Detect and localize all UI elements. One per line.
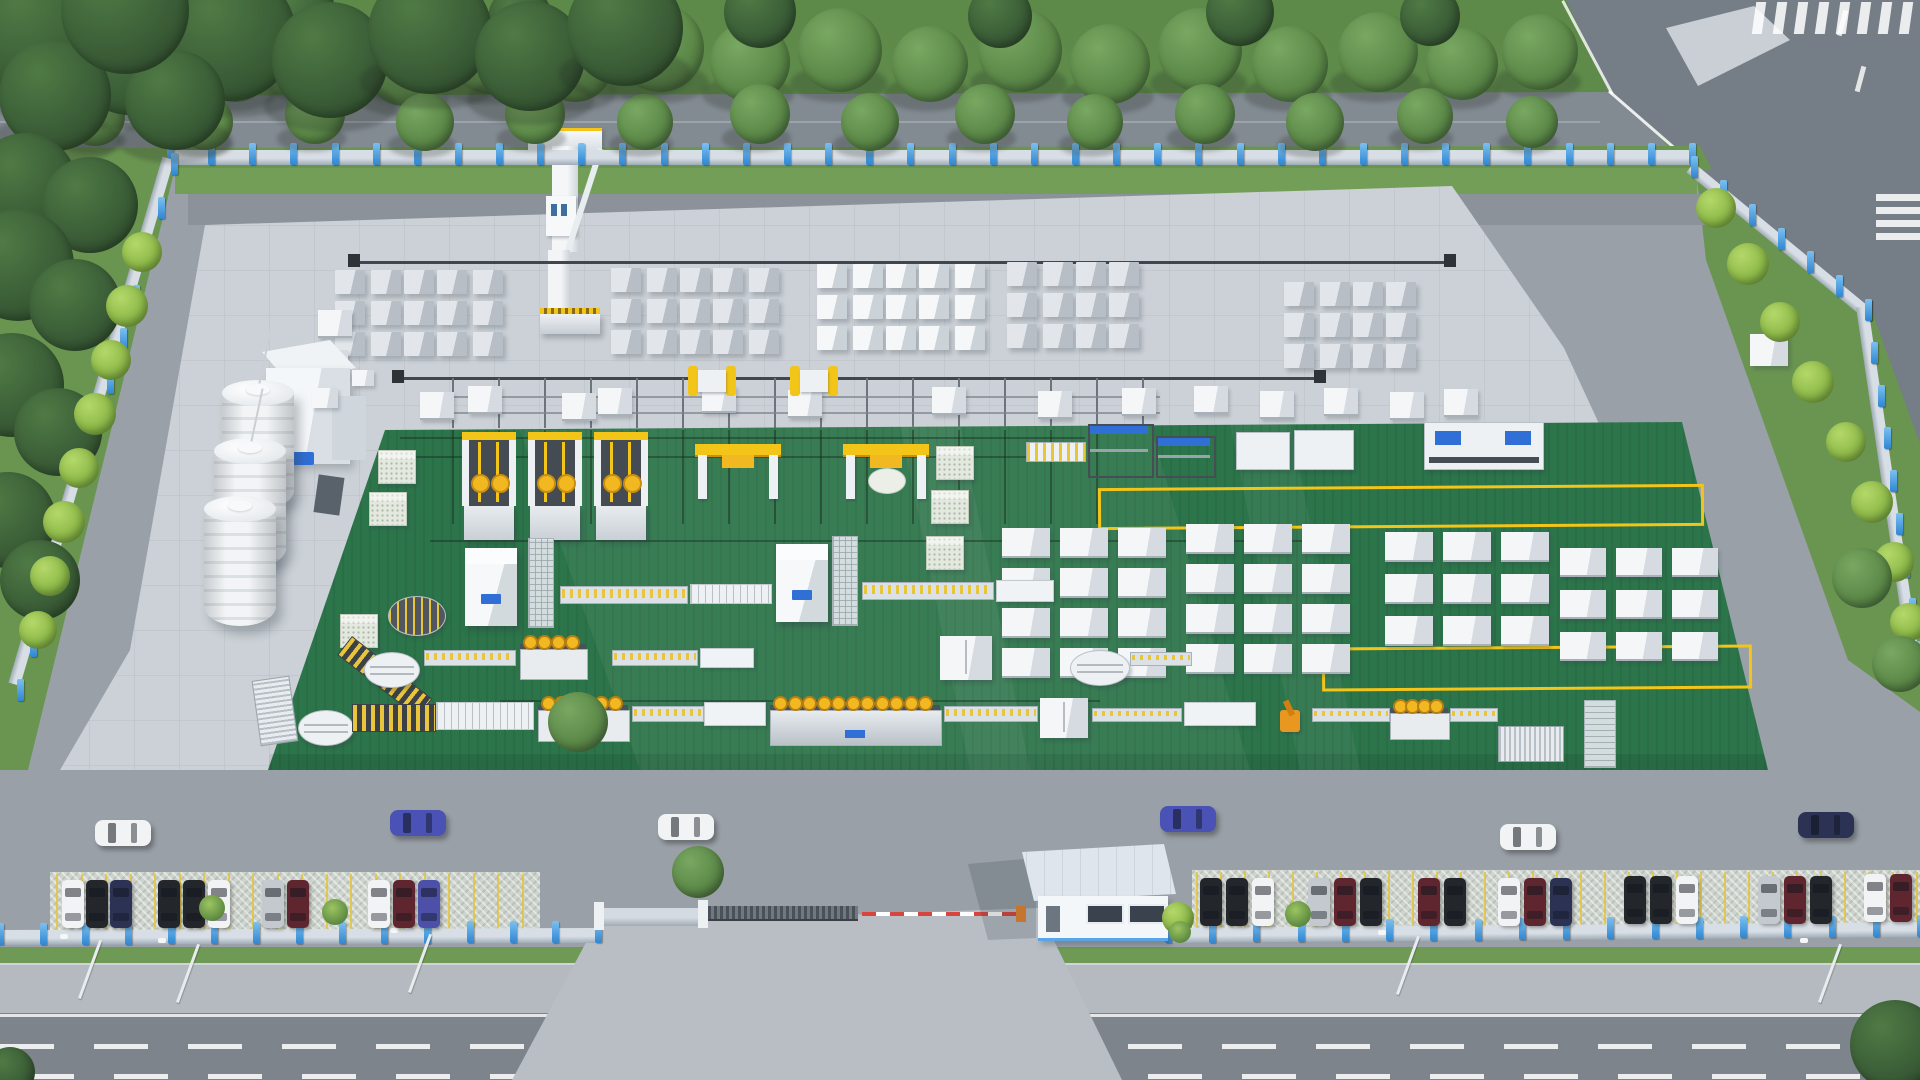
cart-body: [800, 370, 828, 392]
mold-box: [562, 393, 596, 421]
car-glass: [1867, 907, 1883, 915]
parked-car: [1624, 876, 1646, 924]
inner-grass-strip: [175, 168, 1697, 194]
machine-wheel: [471, 474, 490, 493]
car-glass: [1527, 911, 1543, 919]
cabinet-door: [965, 640, 967, 674]
turn-line: [1077, 671, 1123, 673]
moving-car: [390, 810, 446, 836]
tree: [1727, 243, 1769, 285]
block-stack: [955, 326, 985, 350]
roller-conveyor: [632, 706, 704, 722]
floor-rail: [590, 430, 592, 524]
aerated-cake: [936, 446, 974, 480]
blue-unit: [1435, 431, 1461, 445]
fence-post: [249, 143, 256, 165]
car-glass: [161, 888, 177, 897]
car-glass: [89, 913, 105, 921]
car-glass: [1787, 884, 1803, 893]
turn-line: [370, 673, 413, 675]
gantry-trolley: [722, 455, 754, 468]
block-stack: [1007, 262, 1037, 286]
turntable: [298, 710, 354, 746]
fence-post: [1691, 156, 1698, 178]
mold-box: [1186, 524, 1234, 554]
crane-rail: [396, 377, 1322, 380]
mold-box: [1260, 391, 1294, 419]
work-table: [700, 648, 754, 668]
fence-post: [373, 143, 380, 165]
machine-rail: [562, 442, 565, 502]
parked-car: [1676, 876, 1698, 924]
fence-post: [1237, 143, 1244, 165]
tree: [1252, 26, 1328, 102]
crosswalk-bar: [1876, 194, 1920, 201]
machine-logo: [481, 594, 501, 604]
block-stack: [1386, 344, 1416, 368]
fence-post: [825, 143, 832, 165]
spool: [1429, 699, 1444, 714]
crosswalk-bar: [1876, 207, 1920, 214]
parked-car: [287, 880, 309, 928]
car-glass: [421, 888, 437, 897]
car-glass: [1173, 809, 1181, 829]
lane-dash: [282, 1044, 336, 1049]
rollers: [426, 653, 514, 660]
moving-car: [1500, 824, 1556, 850]
car-glass: [671, 817, 679, 837]
machine-top: [776, 544, 828, 560]
mold-box: [1443, 616, 1491, 646]
mold-box: [1672, 548, 1718, 577]
block-stack: [817, 326, 847, 350]
cutting-machine: [462, 432, 516, 546]
roller-conveyor: [1312, 708, 1390, 722]
car-glass: [1527, 886, 1543, 895]
block-stack: [647, 299, 677, 323]
crane-cab-window: [561, 204, 567, 216]
roller-conveyor: [1450, 708, 1498, 722]
car-glass: [1311, 911, 1327, 919]
mold-box: [1385, 574, 1433, 604]
fence-post: [1607, 917, 1614, 939]
fence-post: [1890, 470, 1897, 492]
car-glass: [1363, 886, 1379, 895]
moving-car: [658, 814, 714, 840]
block-stack: [886, 295, 916, 319]
mold-box: [1118, 608, 1166, 638]
turn-line: [1077, 664, 1123, 666]
tree: [1067, 94, 1123, 150]
tree: [122, 232, 162, 272]
parked-car: [1784, 876, 1806, 924]
mold-box: [1444, 389, 1478, 417]
fence-post: [1778, 228, 1785, 250]
turn-line: [304, 724, 347, 726]
mold-box: [318, 310, 352, 338]
blue-machine: [1088, 424, 1154, 478]
machine-rail: [544, 442, 547, 502]
lane-dash: [1316, 1044, 1370, 1049]
tree: [617, 94, 673, 150]
parked-car: [1444, 878, 1466, 926]
block-stack: [1353, 282, 1383, 306]
tree: [1826, 422, 1866, 462]
parked-car: [62, 880, 84, 928]
rail-buffer: [392, 370, 404, 383]
tree: [91, 340, 131, 380]
block-stack: [437, 270, 467, 294]
parked-car: [368, 880, 390, 928]
car-glass: [1255, 886, 1271, 895]
yellow-gantry: [843, 444, 929, 502]
rollers: [614, 653, 696, 660]
blue-machine: [1156, 436, 1216, 478]
equipment-hut: [352, 370, 374, 386]
aerated-cake: [378, 450, 416, 484]
slat-conveyor: [690, 584, 772, 604]
fence-post: [907, 143, 914, 165]
lattice-tower: [832, 536, 858, 626]
fence-post: [40, 923, 47, 945]
block-stack: [611, 299, 641, 323]
street-lamp: [60, 934, 90, 1000]
cart-arm: [688, 366, 698, 396]
bush: [199, 895, 225, 921]
blue-bar: [1090, 426, 1148, 434]
machine-column: [575, 440, 582, 506]
stall-line: [1412, 872, 1414, 932]
cake-top: [370, 493, 406, 501]
gantry-leg: [698, 455, 707, 499]
moving-car: [95, 820, 151, 846]
cutting-machine: [594, 432, 648, 546]
block-stack: [713, 299, 743, 323]
moving-car: [1160, 806, 1216, 832]
car-glass: [1867, 882, 1883, 891]
fence-post: [1896, 513, 1903, 535]
parked-car: [418, 880, 440, 928]
fence-post: [158, 197, 165, 219]
car-glass: [1627, 909, 1643, 917]
mold-box: [1118, 568, 1166, 598]
fence-post: [496, 143, 503, 165]
control-cabinet: [1040, 698, 1088, 738]
spool: [788, 696, 803, 711]
cake-top: [932, 491, 968, 499]
transfer-cart: [790, 360, 838, 402]
block-stack: [437, 301, 467, 325]
lane-dash: [188, 1044, 242, 1049]
lamp-head: [390, 928, 398, 933]
fence-post: [1648, 143, 1655, 165]
fence-post: [510, 921, 517, 943]
car-glass: [1501, 911, 1517, 919]
mold-box: [1672, 632, 1718, 661]
machine-wheel: [537, 474, 556, 493]
car-glass: [396, 888, 412, 897]
car-glass: [265, 888, 281, 897]
gantry-leg: [769, 455, 778, 499]
lane-dash: [1504, 1044, 1558, 1049]
mold-box: [1616, 590, 1662, 619]
mold-box: [1244, 644, 1292, 674]
car-glass: [396, 913, 412, 921]
lane-dash: [1410, 1044, 1464, 1049]
block-stack: [853, 326, 883, 350]
cake-top: [341, 615, 377, 623]
siding-rail: [682, 378, 684, 428]
mold-box: [1501, 532, 1549, 562]
lane-dash: [470, 1044, 524, 1049]
car-glass: [1761, 884, 1777, 893]
stall-line: [1580, 872, 1582, 932]
block-stack: [1386, 282, 1416, 306]
block-stack: [473, 301, 503, 325]
block-stack: [404, 332, 434, 356]
car-glass: [65, 888, 81, 897]
cart-body: [698, 370, 726, 392]
car-glass: [1501, 886, 1517, 895]
street-lamp: [1800, 938, 1830, 1004]
fence-post: [1566, 143, 1573, 165]
car-glass: [426, 813, 432, 833]
car-glass: [1447, 886, 1463, 895]
mold-box: [1443, 574, 1491, 604]
car-glass: [161, 913, 177, 921]
machine-rail: [496, 442, 499, 502]
block-stack: [404, 301, 434, 325]
machine-rail: [478, 442, 481, 502]
guard-house-window: [1128, 904, 1166, 924]
car-glass: [371, 888, 387, 897]
work-table: [996, 580, 1054, 602]
car-glass: [89, 888, 105, 897]
roller-conveyor: [612, 650, 698, 666]
parked-car: [1252, 878, 1274, 926]
bush: [322, 899, 348, 925]
dosing-machine: [776, 544, 828, 622]
equipment-hut: [312, 388, 338, 408]
mold-box: [598, 388, 632, 416]
tree: [1760, 302, 1800, 342]
lane-dash: [94, 1044, 148, 1049]
siding-rail: [912, 378, 914, 428]
mold-box: [1501, 574, 1549, 604]
block-stack: [1109, 262, 1139, 286]
car-glass: [1679, 909, 1695, 917]
lane-dash: [376, 1044, 430, 1049]
cake-top: [937, 447, 973, 455]
fence-post: [1871, 342, 1878, 364]
car-glass: [1447, 911, 1463, 919]
mold-box: [1122, 388, 1156, 416]
block-stack: [853, 295, 883, 319]
guard-house-door: [1046, 906, 1060, 932]
cutting-machine: [528, 432, 582, 546]
mold-box: [1002, 648, 1050, 678]
lattice-tower: [1584, 700, 1616, 768]
spool-base: [520, 649, 588, 680]
rollers: [634, 709, 702, 716]
lane-dash: [114, 1074, 168, 1079]
slat-conveyor: [436, 702, 534, 730]
company-logo: [292, 452, 314, 465]
car-glass: [1337, 911, 1353, 919]
machine-wheel: [491, 474, 510, 493]
lane-dash: [1242, 1074, 1296, 1079]
car-glass: [1203, 911, 1219, 919]
parked-car: [158, 880, 180, 928]
floor-rail: [682, 430, 684, 524]
block-stack: [1353, 313, 1383, 337]
floor-rail: [452, 430, 454, 524]
tree: [798, 8, 882, 92]
parked-car: [1864, 874, 1886, 922]
car-glass: [1653, 884, 1669, 893]
mold-box: [1038, 391, 1072, 419]
block-stack: [1043, 262, 1073, 286]
mold-box: [1560, 548, 1606, 577]
spool: [608, 696, 623, 711]
crane-cab-window: [551, 204, 557, 216]
machine-column: [462, 440, 469, 506]
block-stack: [1043, 293, 1073, 317]
machine-top: [465, 548, 517, 564]
frame-beam: [1090, 449, 1148, 452]
accordion-rack: [1498, 726, 1564, 762]
fence-post: [1154, 143, 1161, 165]
machine-pedestal: [596, 506, 646, 540]
tree: [841, 93, 899, 151]
car-glass: [1513, 827, 1521, 847]
tree: [30, 556, 70, 596]
blue-unit: [1505, 431, 1531, 445]
loading-ramp: [313, 474, 344, 515]
block-stack: [1109, 324, 1139, 348]
bush: [1285, 901, 1311, 927]
car-glass: [371, 913, 387, 921]
mold-box: [1501, 616, 1549, 646]
cabinet-door: [1063, 702, 1065, 732]
lamp-head: [158, 938, 166, 943]
tree: [1832, 548, 1892, 608]
mold-box: [1302, 564, 1350, 594]
mold-box: [1324, 388, 1358, 416]
block-stack: [647, 268, 677, 292]
gate-wall: [598, 908, 702, 926]
car-glass: [1761, 909, 1777, 917]
parked-car: [1226, 878, 1248, 926]
machine-rail: [628, 442, 631, 502]
fence-post: [339, 922, 346, 944]
fence-post: [1836, 275, 1843, 297]
mold-box: [932, 387, 966, 415]
block-stack: [647, 330, 677, 354]
wire-spool-machine: [1390, 696, 1448, 738]
street-lamp: [390, 928, 420, 994]
gate-pillar: [698, 900, 708, 928]
yellow-gantry: [695, 444, 781, 502]
machine-column: [509, 440, 516, 506]
machine-rail: [610, 442, 613, 502]
block-stack: [853, 264, 883, 288]
car-glass: [1813, 909, 1829, 917]
roller-conveyor: [424, 650, 516, 666]
lane-dash: [302, 1074, 356, 1079]
mold-box: [1186, 644, 1234, 674]
stall-line: [1196, 872, 1198, 932]
frame-beam: [1158, 455, 1210, 458]
bush: [1169, 921, 1191, 943]
cart-arm: [726, 366, 736, 396]
mold-box: [1616, 632, 1662, 661]
fence-post: [1360, 143, 1367, 165]
tree: [74, 393, 116, 435]
parked-car: [1524, 878, 1546, 926]
block-stack: [1320, 282, 1350, 306]
car-glass: [1893, 882, 1909, 891]
dosing-machine: [465, 548, 517, 626]
car-glass: [108, 823, 116, 843]
fence-post: [455, 143, 462, 165]
block-stack: [1353, 344, 1383, 368]
fence-post: [1483, 143, 1490, 165]
tree: [892, 26, 968, 102]
fence-post: [17, 679, 24, 701]
car-glass: [1421, 886, 1437, 895]
lane-dash: [208, 1074, 262, 1079]
cart-arm: [828, 366, 838, 396]
rollers: [946, 709, 1036, 716]
block-stack: [371, 332, 401, 356]
siding-rail: [774, 378, 776, 428]
rollers: [1452, 711, 1496, 716]
crane-lower-mast: [548, 250, 570, 316]
tree: [106, 285, 148, 327]
spool-base: [770, 710, 942, 746]
tree: [1696, 188, 1736, 228]
block-stack: [611, 268, 641, 292]
fence-post: [253, 922, 260, 944]
factory-aerial-render: [0, 0, 1920, 1080]
mold-box: [1560, 632, 1606, 661]
lane-dash: [396, 1074, 450, 1079]
block-stack: [886, 264, 916, 288]
machine-interior: [535, 440, 575, 506]
car-glass: [1337, 886, 1353, 895]
lane-dash: [1430, 1074, 1484, 1079]
mold-box: [1060, 608, 1108, 638]
car-glass: [1363, 911, 1379, 919]
fence-post: [784, 143, 791, 165]
rollers: [1132, 655, 1190, 660]
mold-box: [1672, 590, 1718, 619]
crane-base: [540, 314, 600, 334]
turntable: [1070, 650, 1130, 686]
siding-rail: [1004, 378, 1006, 428]
transfer-cart: [688, 360, 736, 402]
fence-post: [467, 921, 474, 943]
tree: [1506, 96, 1558, 148]
car-glass: [1203, 886, 1219, 895]
mold-box: [1385, 532, 1433, 562]
block-stack: [404, 270, 434, 294]
crosswalk-bar: [1876, 233, 1920, 240]
fence-post: [1031, 143, 1038, 165]
lamp-head: [1800, 938, 1808, 943]
parked-car: [1200, 878, 1222, 926]
